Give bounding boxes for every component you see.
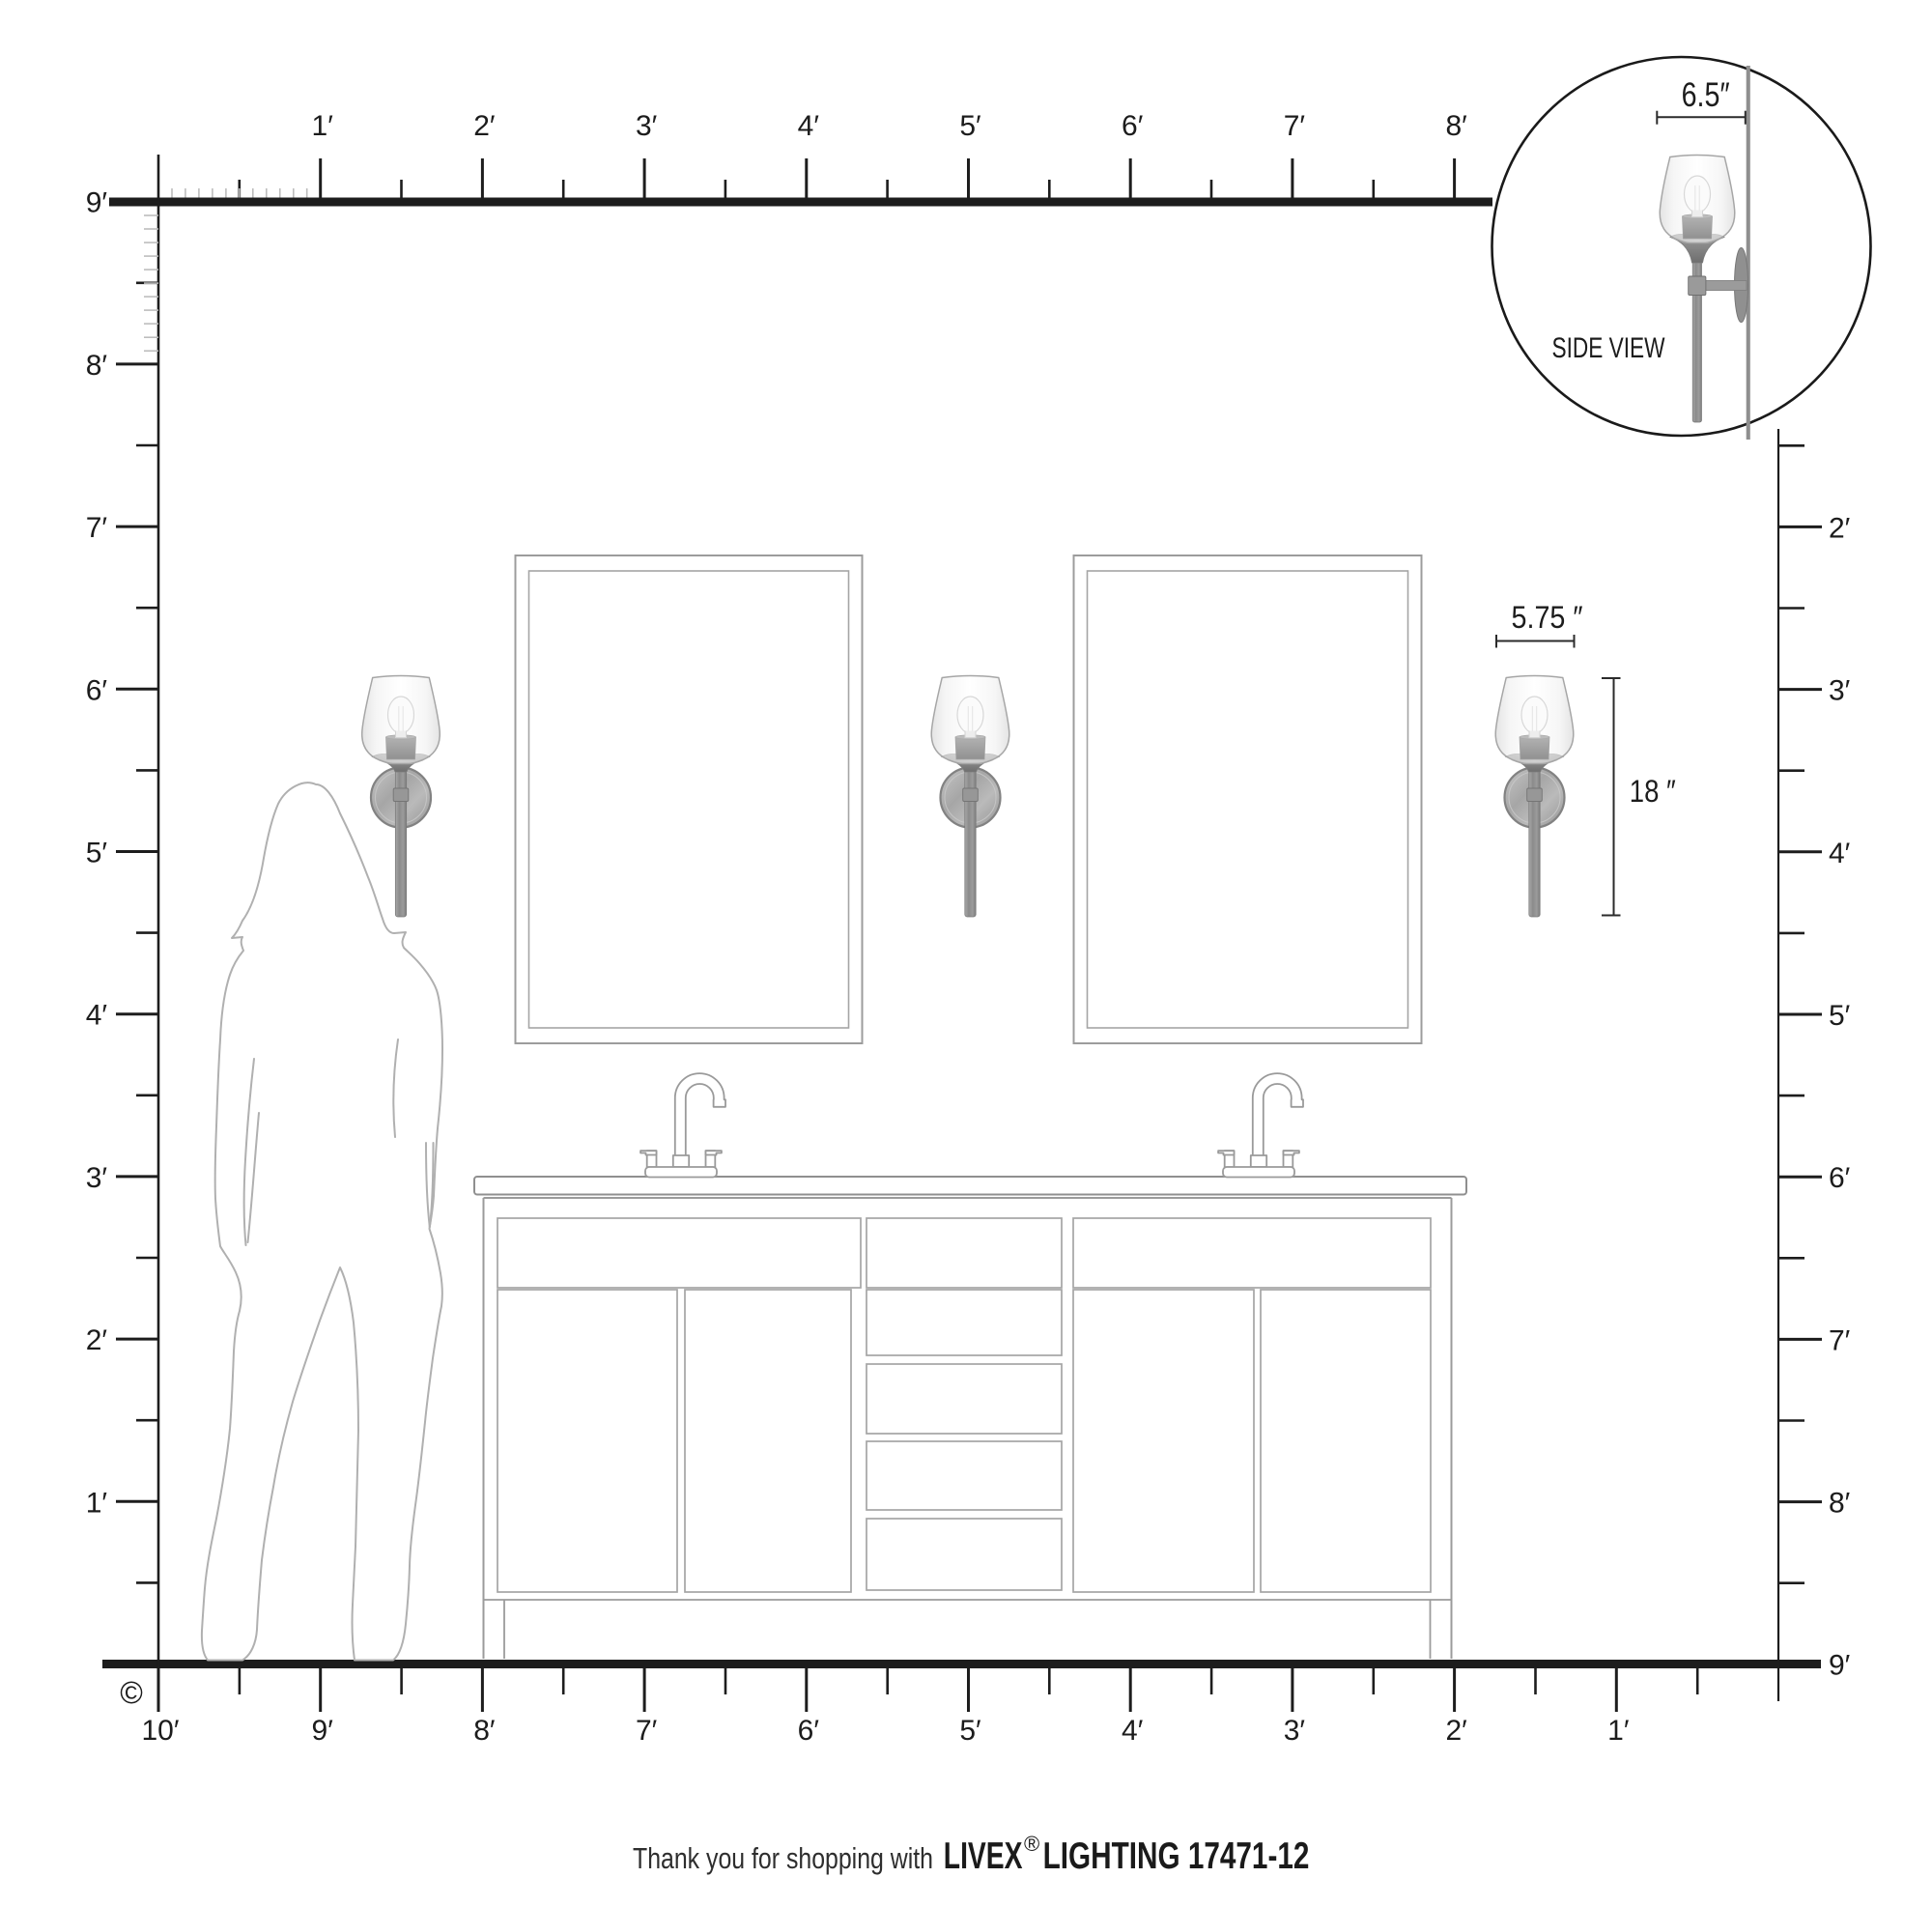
svg-text:LIGHTING 17471-12: LIGHTING 17471-12 <box>1043 1835 1310 1877</box>
svg-text:®: ® <box>1024 1832 1039 1856</box>
svg-text:1′: 1′ <box>312 110 334 142</box>
svg-text:5′: 5′ <box>959 110 981 142</box>
svg-text:9′: 9′ <box>1829 1650 1851 1682</box>
svg-text:6′: 6′ <box>1829 1162 1851 1194</box>
svg-text:4′: 4′ <box>798 110 820 142</box>
svg-text:Thank you for shopping with: Thank you for shopping with <box>633 1841 933 1875</box>
svg-text:8′: 8′ <box>1445 110 1467 142</box>
svg-text:10′: 10′ <box>142 1715 180 1747</box>
svg-text:2′: 2′ <box>1445 1715 1467 1747</box>
svg-text:6′: 6′ <box>86 674 108 706</box>
svg-text:4′: 4′ <box>1829 838 1851 869</box>
svg-text:7′: 7′ <box>1829 1324 1851 1356</box>
svg-text:7′: 7′ <box>1284 110 1306 142</box>
svg-text:8′: 8′ <box>1829 1488 1851 1520</box>
svg-text:3′: 3′ <box>1284 1715 1306 1747</box>
svg-text:LIVEX: LIVEX <box>944 1835 1023 1877</box>
svg-text:7′: 7′ <box>86 512 108 544</box>
svg-text:8′: 8′ <box>473 1715 496 1747</box>
svg-text:6.5″: 6.5″ <box>1682 76 1730 114</box>
svg-text:3′: 3′ <box>1829 675 1851 707</box>
svg-text:4′: 4′ <box>1122 1715 1144 1747</box>
svg-text:2′: 2′ <box>473 110 496 142</box>
svg-text:6′: 6′ <box>798 1715 820 1747</box>
svg-text:9′: 9′ <box>312 1715 334 1747</box>
svg-text:8′: 8′ <box>86 350 108 382</box>
svg-text:2′: 2′ <box>1829 512 1851 544</box>
svg-text:7′: 7′ <box>636 1715 658 1747</box>
svg-text:4′: 4′ <box>86 1000 108 1032</box>
svg-text:5′: 5′ <box>1829 1000 1851 1032</box>
svg-text:©: © <box>120 1675 143 1710</box>
svg-text:5.75 ″: 5.75 ″ <box>1512 600 1583 635</box>
svg-text:5′: 5′ <box>959 1715 981 1747</box>
svg-text:SIDE VIEW: SIDE VIEW <box>1552 332 1665 364</box>
svg-text:18 ″: 18 ″ <box>1630 774 1676 809</box>
svg-text:3′: 3′ <box>86 1162 108 1194</box>
svg-text:5′: 5′ <box>86 838 108 869</box>
svg-text:9′: 9′ <box>86 187 108 219</box>
svg-text:6′: 6′ <box>1122 110 1144 142</box>
svg-text:2′: 2′ <box>86 1324 108 1356</box>
svg-text:1′: 1′ <box>86 1487 108 1519</box>
svg-text:1′: 1′ <box>1607 1715 1630 1747</box>
svg-text:3′: 3′ <box>636 110 658 142</box>
